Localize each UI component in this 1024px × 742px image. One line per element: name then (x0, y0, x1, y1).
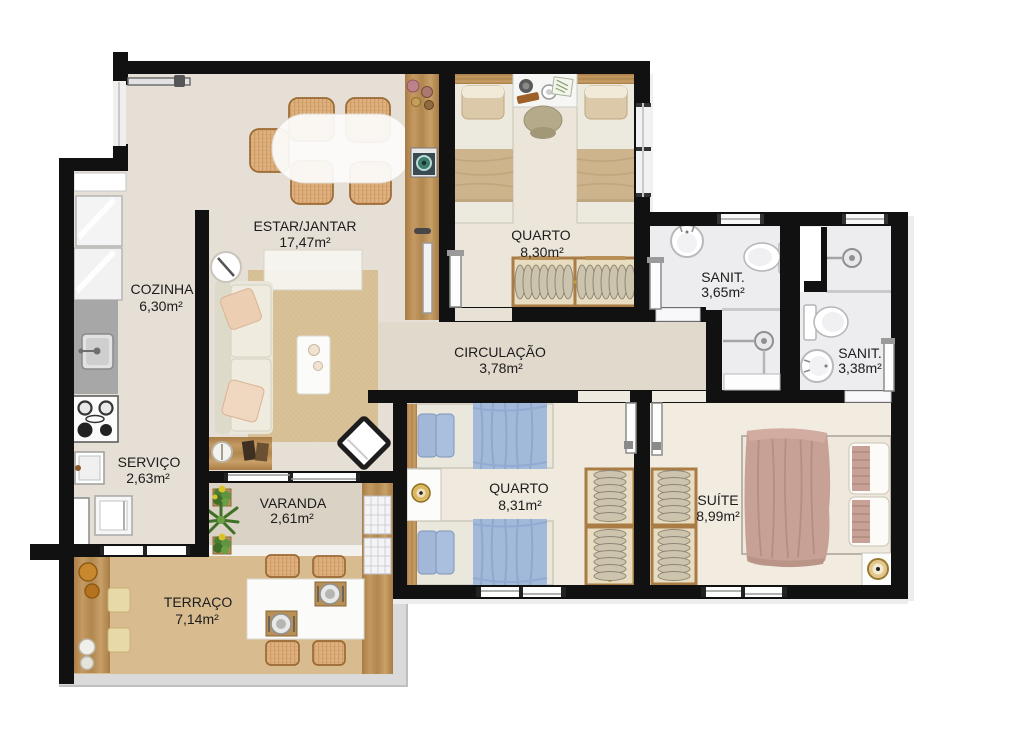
svg-text:ESTAR/JANTAR: ESTAR/JANTAR (254, 218, 357, 234)
svg-text:SERVIÇO: SERVIÇO (118, 454, 181, 470)
svg-text:VARANDA: VARANDA (260, 495, 327, 511)
svg-text:TERRAÇO: TERRAÇO (164, 594, 233, 610)
svg-text:7,14m²: 7,14m² (175, 611, 219, 627)
svg-text:SANIT.: SANIT. (701, 269, 745, 285)
svg-text:8,99m²: 8,99m² (696, 508, 740, 524)
svg-text:8,30m²: 8,30m² (520, 244, 564, 260)
svg-text:2,61m²: 2,61m² (270, 510, 314, 526)
svg-text:17,47m²: 17,47m² (279, 234, 331, 250)
svg-text:3,65m²: 3,65m² (701, 284, 745, 300)
svg-text:6,30m²: 6,30m² (139, 298, 183, 314)
svg-text:QUARTO: QUARTO (511, 227, 570, 243)
svg-text:COZINHA: COZINHA (131, 281, 195, 297)
svg-text:3,78m²: 3,78m² (479, 360, 523, 376)
svg-text:SUÍTE: SUÍTE (697, 492, 738, 508)
svg-text:2,63m²: 2,63m² (126, 470, 170, 486)
svg-text:SANIT.: SANIT. (838, 345, 882, 361)
svg-text:8,31m²: 8,31m² (498, 497, 542, 513)
svg-text:3,38m²: 3,38m² (838, 360, 882, 376)
svg-text:CIRCULAÇÃO: CIRCULAÇÃO (454, 344, 546, 360)
svg-text:QUARTO: QUARTO (489, 480, 548, 496)
